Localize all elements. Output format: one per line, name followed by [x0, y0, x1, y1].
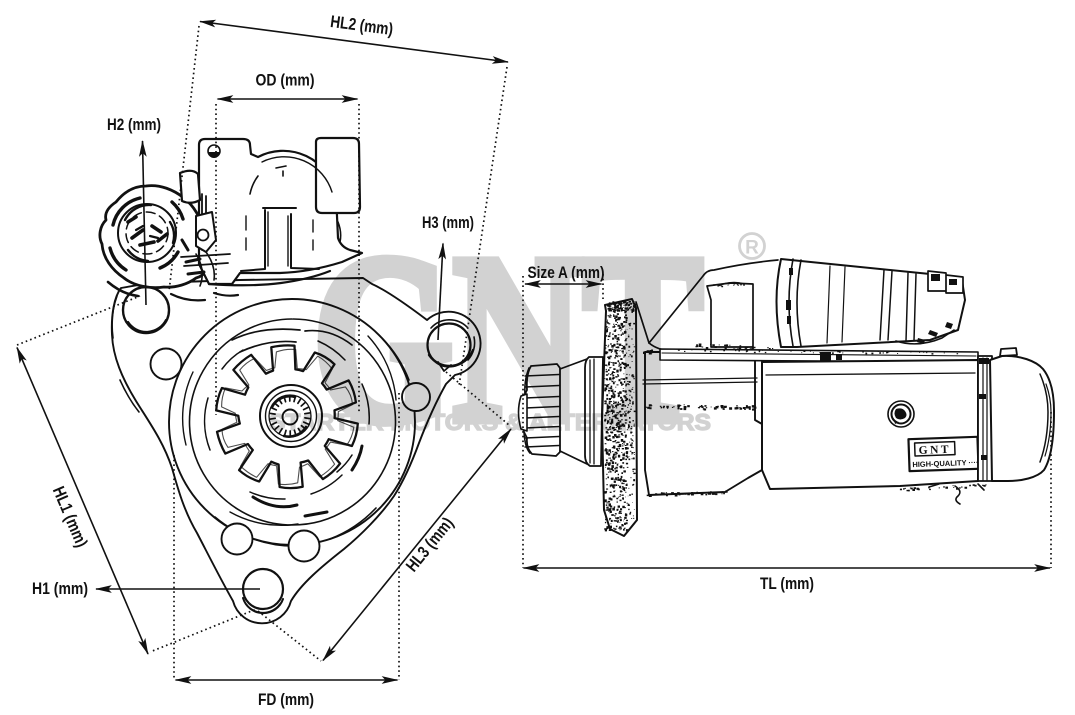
svg-text:GNT: GNT: [918, 444, 951, 457]
svg-text:STARTER MOTORS & ALTERNATORS: STARTER MOTORS & ALTERNATORS: [269, 409, 711, 435]
svg-text:TL (mm): TL (mm): [760, 574, 814, 593]
svg-text:H1 (mm): H1 (mm): [32, 579, 88, 598]
svg-text:Size A (mm): Size A (mm): [528, 263, 605, 282]
svg-text:H2 (mm): H2 (mm): [107, 115, 161, 134]
svg-text:H3 (mm): H3 (mm): [422, 213, 474, 232]
svg-text:R: R: [745, 238, 759, 259]
svg-text:OD (mm): OD (mm): [256, 71, 315, 90]
svg-text:FD (mm): FD (mm): [258, 690, 314, 709]
